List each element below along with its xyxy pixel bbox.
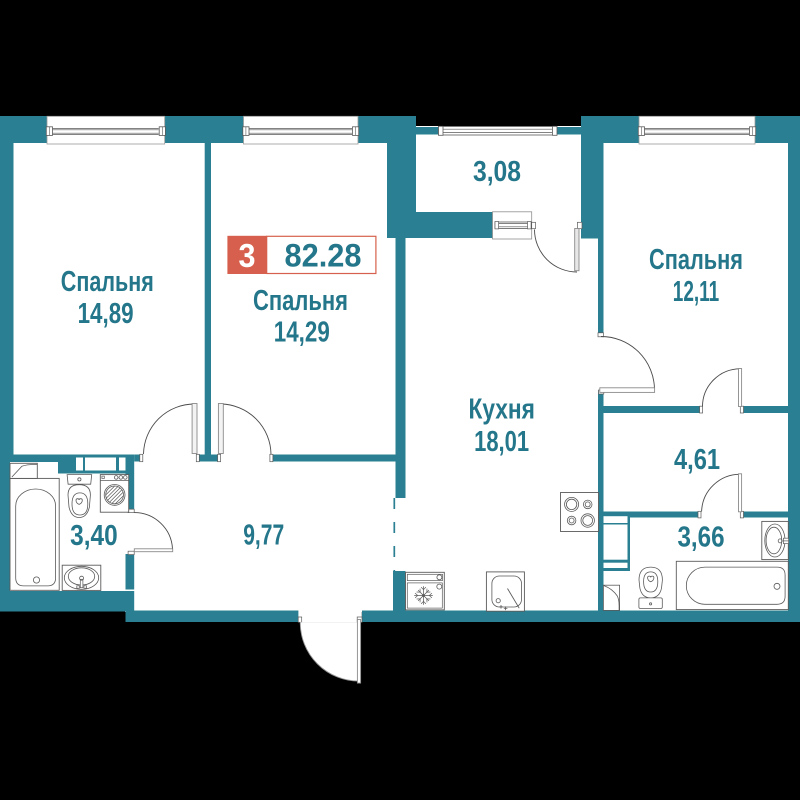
svg-text:Спальня: Спальня <box>253 285 348 317</box>
svg-text:82.28: 82.28 <box>285 238 362 274</box>
svg-text:12,11: 12,11 <box>673 276 720 308</box>
svg-text:14,29: 14,29 <box>274 317 330 349</box>
svg-text:3,66: 3,66 <box>678 522 725 554</box>
svg-text:18,01: 18,01 <box>474 426 529 458</box>
svg-text:3,40: 3,40 <box>70 520 118 552</box>
svg-text:14,89: 14,89 <box>78 298 134 330</box>
svg-text:3: 3 <box>239 237 256 274</box>
svg-text:Спальня: Спальня <box>649 244 743 276</box>
svg-text:9,77: 9,77 <box>243 520 284 552</box>
svg-text:Спальня: Спальня <box>61 266 154 298</box>
svg-text:4,61: 4,61 <box>674 444 720 476</box>
svg-text:3,08: 3,08 <box>473 156 521 188</box>
svg-text:Кухня: Кухня <box>468 394 535 426</box>
